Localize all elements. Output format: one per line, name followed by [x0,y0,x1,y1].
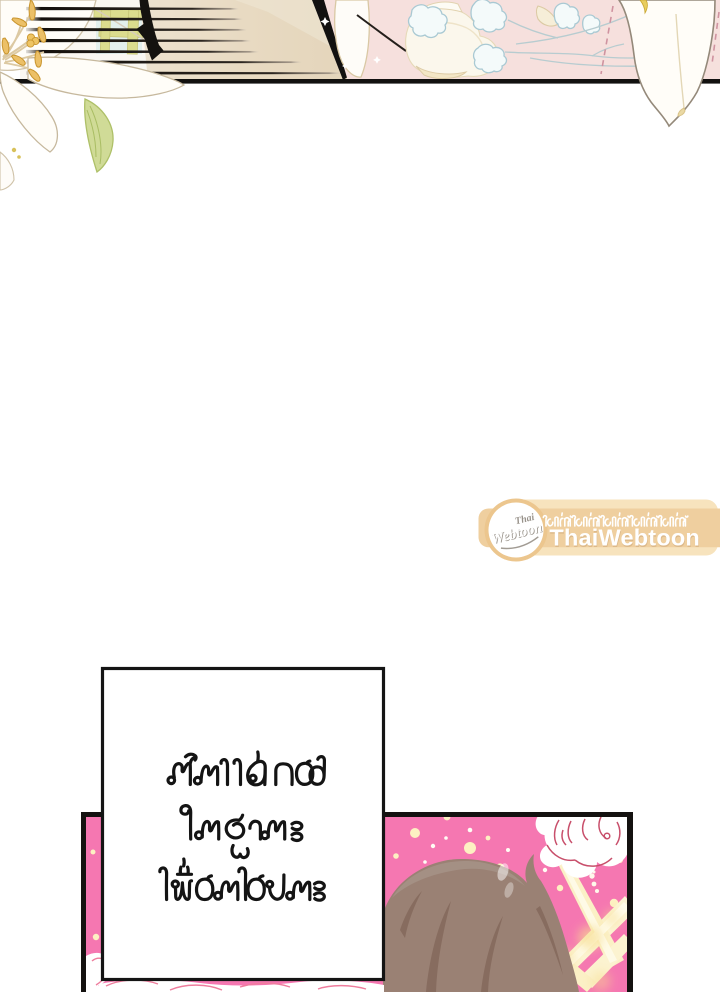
svg-text:ThaiWebtoon: ThaiWebtoon [549,525,700,551]
